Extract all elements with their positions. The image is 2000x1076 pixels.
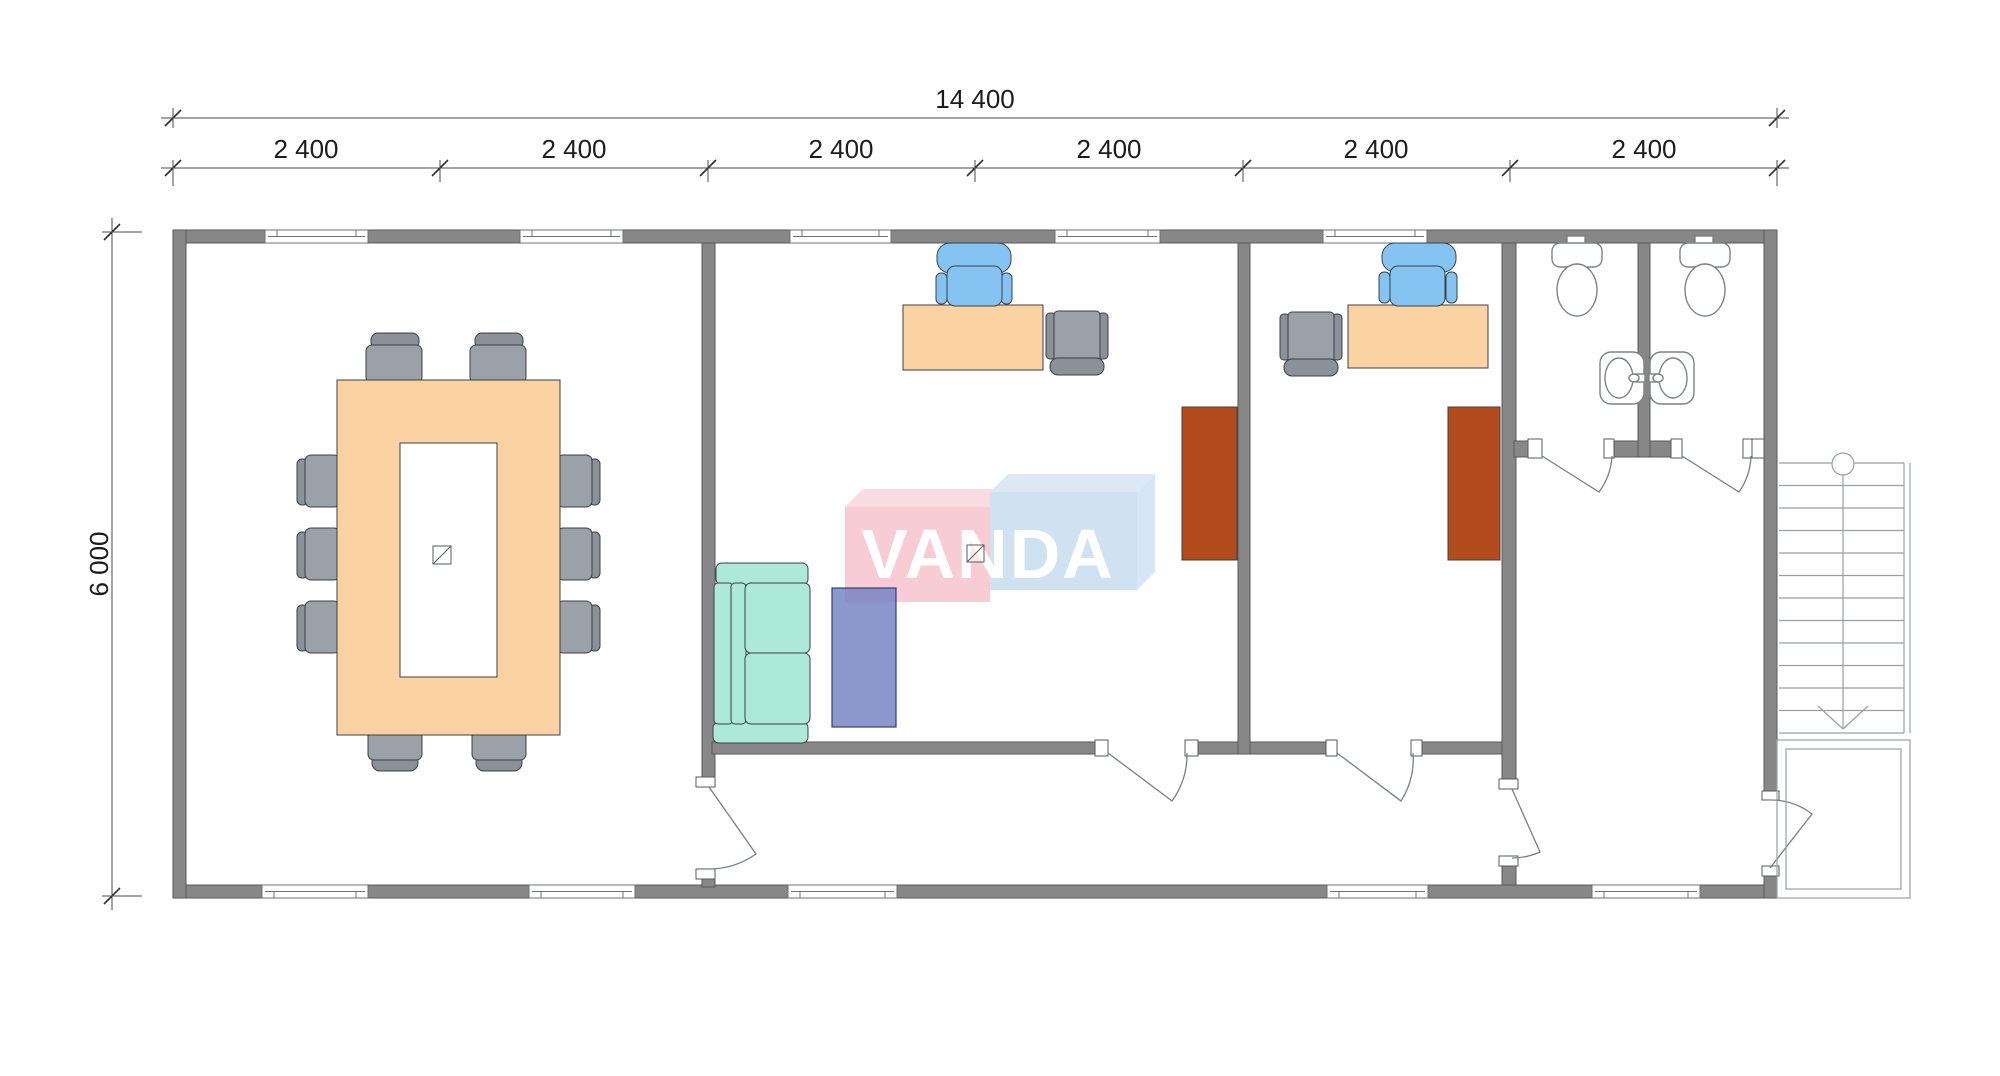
vanda-watermark-logo: VANDA <box>845 474 1155 602</box>
wall-wc-front-3 <box>1650 441 1671 457</box>
stair-start-circle <box>1832 453 1854 475</box>
wall-wc-middle <box>1638 243 1650 457</box>
window-top-4 <box>1055 230 1160 243</box>
window-bottom-3 <box>788 885 897 898</box>
window-bottom-4 <box>1327 885 1428 898</box>
dimension-segment-4: 2 400 <box>1076 134 1141 164</box>
dimension-segment-3: 2 400 <box>808 134 873 164</box>
logo-pink-top-face <box>845 489 1008 507</box>
office-chair-2 <box>1379 243 1457 306</box>
office-desk-1 <box>903 305 1043 370</box>
dimension-segment-5: 2 400 <box>1343 134 1408 164</box>
dimension-height: 6 000 <box>84 218 142 910</box>
chair-armrest-left <box>1379 272 1390 303</box>
wardrobe-cabinet-2 <box>1448 407 1500 560</box>
chair-seat <box>1390 266 1445 306</box>
staircase <box>1777 453 1910 898</box>
sofa-back-outer <box>714 583 733 724</box>
door-wc-2 <box>1682 456 1751 492</box>
floor-symbol-office <box>967 545 984 562</box>
door-entrance <box>1770 800 1812 868</box>
dimension-segment-2: 2 400 <box>541 134 606 164</box>
wall-left <box>173 230 186 898</box>
wall-office-divider <box>1238 243 1250 754</box>
window-top-5 <box>1323 230 1427 243</box>
dimension-segments: 2 400 2 400 2 400 2 400 2 400 2 400 <box>161 134 1789 186</box>
chair-armrest-right <box>1001 273 1012 304</box>
dimension-height-label: 6 000 <box>84 531 114 596</box>
toilet-2 <box>1680 236 1730 316</box>
wall-right-lower <box>1764 876 1777 898</box>
wall-corridor-2 <box>1198 742 1328 754</box>
wall-hall-divider <box>1502 243 1516 789</box>
chair-seat <box>947 266 1002 306</box>
sofa-armrest-top <box>716 563 808 585</box>
office-2 <box>1280 243 1500 560</box>
wall-corridor-3 <box>1422 742 1504 754</box>
logo-blue-side-face <box>1137 474 1155 590</box>
sink-2 <box>1649 352 1694 404</box>
office-desk-2 <box>1348 305 1488 368</box>
wall-bottom <box>173 885 1777 898</box>
floor-symbol-meeting <box>433 546 451 564</box>
conference-table <box>337 380 560 735</box>
door-meeting-room <box>709 787 756 869</box>
entrance-landing <box>1777 740 1910 898</box>
sofa-back-inner <box>731 583 746 724</box>
wall-hall-divider-stub <box>1502 866 1516 885</box>
chair-armrest-left <box>936 273 947 304</box>
logo-blue-top-face <box>990 474 1155 492</box>
door-wc-1 <box>1542 456 1612 492</box>
visitor-chair-1 <box>1046 311 1108 375</box>
window-top-1 <box>265 230 368 243</box>
door-office-1 <box>1108 753 1187 801</box>
dimension-total-width-label: 14 400 <box>935 84 1015 114</box>
wall-wc-front-2 <box>1612 441 1638 457</box>
door-wc-hall <box>1512 789 1540 858</box>
window-top-2 <box>520 230 623 243</box>
sofa-cushion-1 <box>745 583 810 653</box>
sofa-armrest-bottom <box>713 722 808 743</box>
sink-1 <box>1600 352 1645 404</box>
toilet-1 <box>1552 236 1602 316</box>
sofa <box>713 563 810 743</box>
visitor-chair-2 <box>1280 312 1342 376</box>
wall-corridor-1 <box>712 742 1097 754</box>
window-bottom-1 <box>262 885 368 898</box>
dimension-segment-1: 2 400 <box>273 134 338 164</box>
chair-armrest-right <box>1446 272 1457 303</box>
window-bottom-5 <box>1592 885 1700 898</box>
wall-top <box>173 230 1777 243</box>
wall-meeting-divider-stub <box>702 879 715 887</box>
floor-plan-canvas: VANDA <box>0 0 2000 1076</box>
window-top-3 <box>790 230 891 243</box>
dimension-total-width: 14 400 <box>161 84 1789 128</box>
rug <box>832 588 896 727</box>
wall-meeting-divider <box>702 243 715 787</box>
wardrobe-cabinet-1 <box>1182 407 1237 560</box>
sofa-cushion-2 <box>745 653 810 724</box>
office-chair-1 <box>936 243 1012 306</box>
window-bottom-2 <box>529 885 635 898</box>
dimension-segment-6: 2 400 <box>1611 134 1676 164</box>
wall-right-upper <box>1764 230 1777 791</box>
door-office-2 <box>1337 753 1413 801</box>
wall-wc-front-1 <box>1514 441 1528 457</box>
watermark-text: VANDA <box>861 515 1115 593</box>
